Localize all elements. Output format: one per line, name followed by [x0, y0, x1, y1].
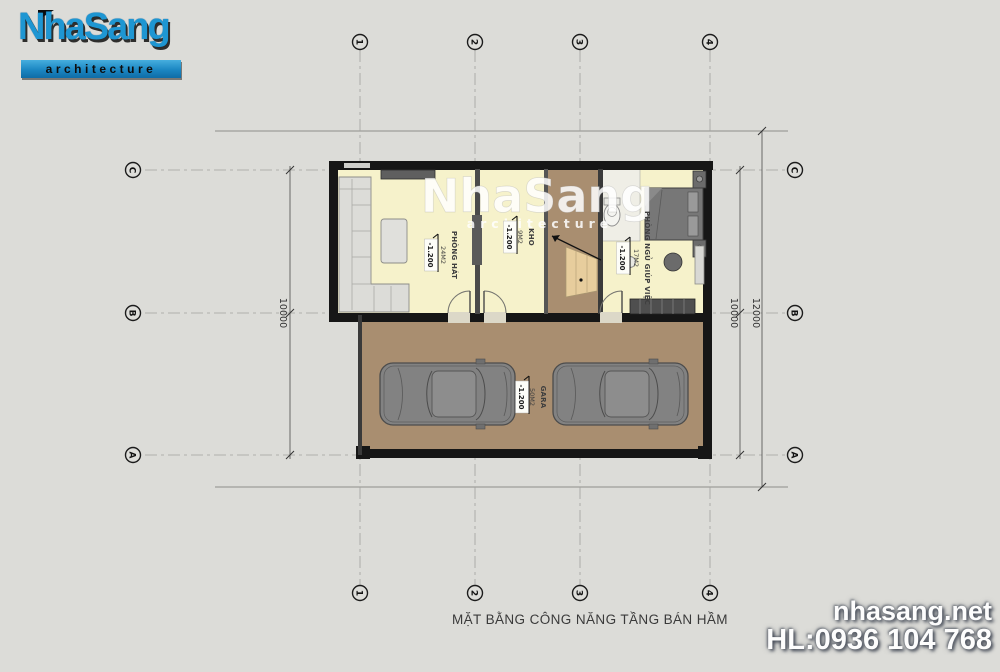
svg-text:C: C [789, 167, 799, 174]
svg-text:-1.200: -1.200 [505, 224, 513, 249]
svg-text:4: 4 [704, 590, 714, 596]
svg-text:GARA: GARA [539, 386, 547, 409]
level-box-garage: -1.200 [516, 376, 530, 414]
svg-text:4: 4 [704, 39, 714, 45]
svg-text:1: 1 [354, 39, 364, 45]
desk [695, 246, 704, 284]
dimension-label-right-outer: 12000 [750, 298, 761, 328]
hotline-text: HL:0936 104 768 [766, 625, 992, 655]
page: { "logo": { "brand": "NhaSang", "tagline… [0, 0, 1000, 667]
svg-text:KHO: KHO [527, 228, 535, 246]
svg-text:2: 2 [469, 39, 479, 45]
website-text: nhasang.net [766, 597, 992, 625]
dimension-label-left: 10000 [277, 298, 288, 328]
logo-tagline: architecture [21, 60, 181, 78]
floor-plan-drawing: 10000 10000 12000 1 2 3 4 1 2 3 4 C B A … [0, 0, 1000, 667]
svg-text:1: 1 [354, 590, 364, 596]
svg-text:A: A [127, 452, 137, 459]
grid-bubble-labels-left: C B A [127, 167, 137, 459]
level-box-storage: -1.200 [504, 216, 518, 254]
car-right [553, 359, 688, 429]
svg-text:3: 3 [574, 39, 584, 45]
svg-text:-1.200: -1.200 [618, 245, 626, 270]
grid-bubbles-bottom [353, 586, 718, 601]
grid-bubbles-top [353, 35, 718, 50]
svg-text:architecture: architecture [467, 216, 614, 231]
grid-bubble-labels-bottom: 1 2 3 4 [354, 590, 714, 596]
window-top-wall [344, 163, 370, 168]
grid-bubble-labels-top: 1 2 3 4 [354, 39, 714, 45]
car-left [380, 359, 515, 429]
svg-text:3: 3 [574, 590, 584, 596]
svg-text:NhaSang: NhaSang [421, 169, 653, 223]
drawing-caption: MẶT BẰNG CÔNG NĂNG TẦNG BÁN HẦM [452, 612, 728, 627]
svg-text:2: 2 [469, 590, 479, 596]
svg-text:24M2: 24M2 [439, 246, 447, 264]
chair [664, 253, 682, 271]
svg-text:B: B [127, 310, 137, 317]
grid-bubble-labels-right: C B A [789, 167, 799, 459]
garage-left-wall [358, 315, 362, 455]
dimension-label-right-inner: 10000 [728, 298, 739, 328]
level-box-bedroom: -1.200 [617, 237, 631, 275]
svg-text:12000: 12000 [750, 298, 761, 328]
svg-text:-1.200: -1.200 [426, 242, 434, 267]
coffee-table [381, 219, 407, 263]
svg-text:A: A [789, 452, 799, 459]
watermark: NhaSang architecture [421, 169, 653, 231]
svg-text:PHÒNG NGỦ GIÚP VIỆC: PHÒNG NGỦ GIÚP VIỆC [643, 211, 653, 305]
svg-text:C: C [127, 167, 137, 174]
svg-text:10000: 10000 [728, 298, 739, 328]
svg-text:10000: 10000 [277, 298, 288, 328]
svg-text:PHÒNG HÁT: PHÒNG HÁT [450, 231, 459, 279]
svg-text:B: B [789, 310, 799, 317]
logo: NhaSang architecture [18, 8, 203, 86]
logo-brand: NhaSang [18, 8, 203, 46]
svg-text:-1.200: -1.200 [517, 384, 525, 409]
level-box-living: -1.200 [425, 234, 439, 272]
svg-text:17M2: 17M2 [632, 249, 640, 267]
contact-block: nhasang.net HL:0936 104 768 [766, 597, 992, 656]
